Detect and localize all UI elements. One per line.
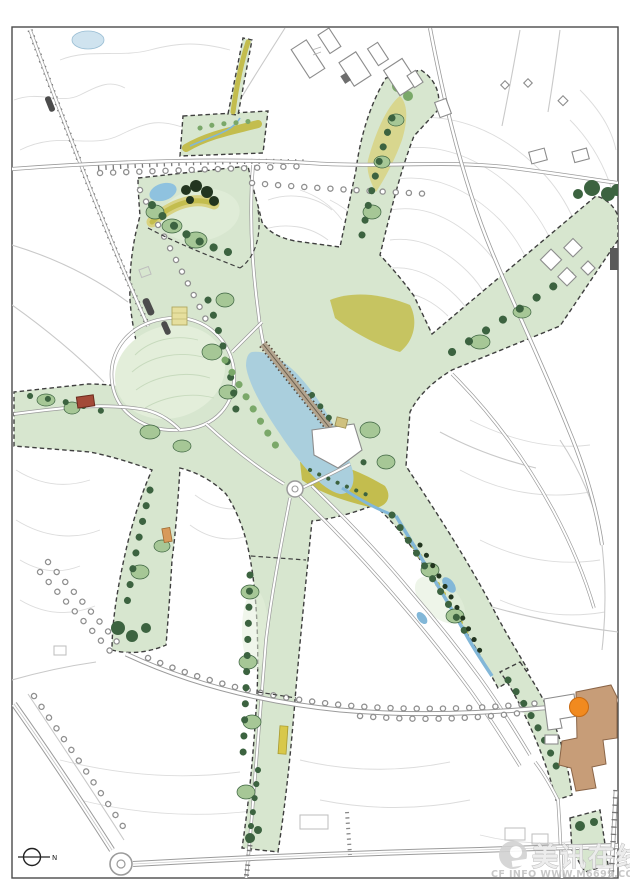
masterplan-page: N 美讯在线 CF INFO WWW.M6699.COM [0, 0, 630, 891]
building-yellow-corridor [278, 726, 288, 754]
roundabout-park-center [287, 481, 303, 497]
north-arrow-label: N [52, 854, 57, 862]
landmark-orange-circle [570, 698, 589, 717]
masterplan-map-canvas: N 美讯在线 CF INFO WWW.M6699.COM [0, 0, 630, 891]
watermark-url: CF INFO WWW.M6699.COM [491, 869, 630, 880]
sports-court [172, 307, 187, 325]
watermark: 美讯在线 CF INFO WWW.M6699.COM [491, 841, 630, 880]
roundabout-south-west [110, 853, 132, 875]
building-red-west [76, 395, 94, 408]
